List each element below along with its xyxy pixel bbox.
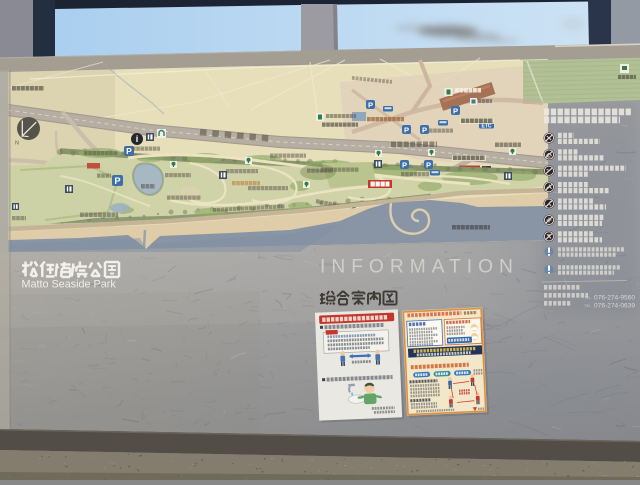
- svg-text:INFORMATION: INFORMATION: [320, 257, 519, 278]
- svg-text:P: P: [453, 106, 458, 115]
- svg-text:P: P: [368, 100, 373, 109]
- svg-text:P: P: [402, 160, 407, 169]
- svg-text:ETC: ETC: [482, 123, 492, 129]
- svg-text:P: P: [426, 160, 431, 169]
- svg-text:i: i: [136, 134, 139, 144]
- svg-text:P: P: [404, 125, 409, 134]
- svg-text:P: P: [114, 176, 120, 186]
- svg-text:076-274-9560: 076-274-9560: [594, 295, 635, 302]
- svg-text:TEL: TEL: [584, 295, 592, 300]
- svg-text:N: N: [15, 141, 19, 147]
- svg-text:P: P: [422, 125, 427, 134]
- svg-text:076-274-0639: 076-274-0639: [594, 303, 635, 310]
- svg-text:TEL: TEL: [584, 303, 592, 308]
- svg-text:Matto Seaside Park: Matto Seaside Park: [22, 278, 117, 290]
- svg-text:P: P: [126, 146, 132, 156]
